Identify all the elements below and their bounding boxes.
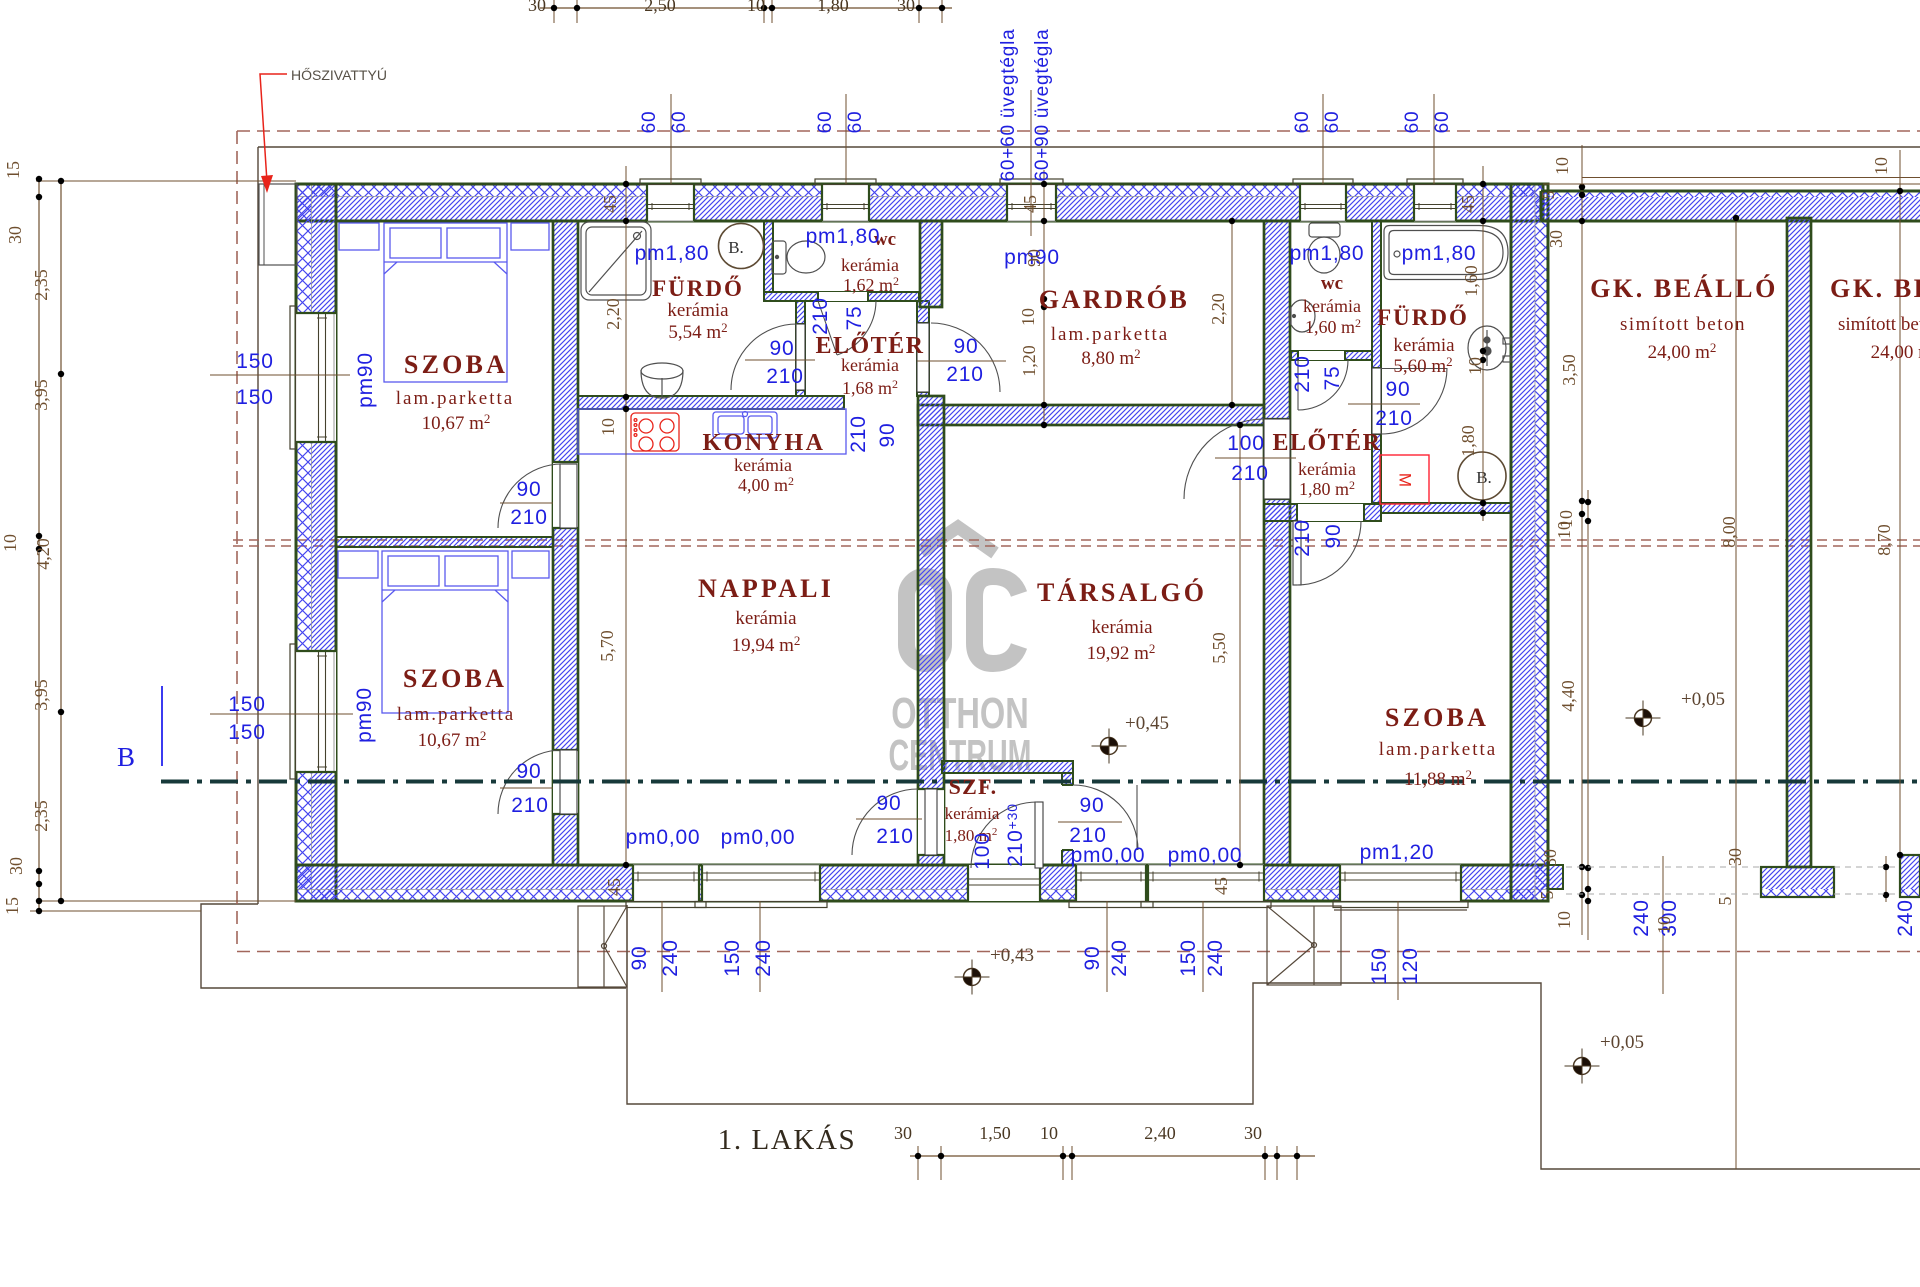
svg-text:1,60 m2: 1,60 m2	[1305, 316, 1361, 337]
svg-text:2,35: 2,35	[31, 800, 51, 832]
svg-text:wc: wc	[1321, 273, 1343, 294]
svg-text:10: 10	[598, 418, 618, 436]
svg-text:5,60 m2: 5,60 m2	[1393, 354, 1452, 377]
svg-text:150: 150	[228, 693, 265, 716]
svg-text:150: 150	[1368, 947, 1391, 984]
svg-text:210: 210	[809, 297, 832, 334]
svg-text:210: 210	[1069, 824, 1106, 847]
svg-text:pm1,80: pm1,80	[1290, 242, 1365, 265]
svg-text:kerámia: kerámia	[841, 355, 899, 375]
svg-text:19,92 m2: 19,92 m2	[1087, 641, 1156, 664]
svg-text:1,68 m2: 1,68 m2	[842, 377, 898, 398]
svg-text:kerámia: kerámia	[945, 804, 1000, 823]
svg-text:SZF.: SZF.	[949, 774, 998, 799]
svg-text:pm90: pm90	[354, 352, 377, 408]
svg-text:90: 90	[1024, 249, 1044, 267]
svg-text:90: 90	[1081, 946, 1104, 971]
svg-text:2,20: 2,20	[1208, 293, 1228, 325]
svg-text:10: 10	[1871, 157, 1891, 175]
svg-text:M: M	[1396, 473, 1415, 487]
svg-text:+0,05: +0,05	[1600, 1032, 1644, 1053]
svg-text:3,95: 3,95	[31, 679, 51, 711]
svg-text:90: 90	[770, 337, 795, 360]
svg-text:30: 30	[5, 226, 25, 244]
svg-text:60: 60	[845, 111, 866, 134]
svg-text:3,95: 3,95	[31, 379, 51, 411]
svg-text:B.: B.	[728, 238, 744, 257]
svg-text:B: B	[117, 742, 135, 772]
svg-text:60: 60	[1432, 111, 1453, 134]
svg-text:150: 150	[1177, 939, 1200, 976]
svg-text:150: 150	[236, 386, 273, 409]
svg-text:60: 60	[639, 111, 660, 134]
svg-text:ELŐTÉR: ELŐTÉR	[1272, 429, 1381, 456]
svg-text:10: 10	[1554, 911, 1574, 929]
svg-text:60: 60	[669, 111, 690, 134]
svg-text:FÜRDŐ: FÜRDŐ	[652, 275, 744, 301]
svg-text:30: 30	[6, 857, 26, 875]
svg-text:5: 5	[1715, 897, 1735, 906]
svg-text:GK. BEÁLLÓ: GK. BEÁLLÓ	[1590, 274, 1778, 303]
svg-text:4,20: 4,20	[33, 538, 53, 570]
svg-text:210: 210	[1375, 407, 1412, 430]
svg-text:30: 30	[894, 1123, 912, 1143]
svg-text:60+90 üvegtégla: 60+90 üvegtégla	[1032, 28, 1053, 181]
svg-text:75: 75	[1321, 366, 1344, 391]
svg-text:10: 10	[1554, 521, 1574, 539]
svg-text:240: 240	[752, 939, 775, 976]
svg-text:10: 10	[1040, 1123, 1058, 1143]
svg-text:pm0,00: pm0,00	[721, 826, 796, 849]
svg-text:1,80: 1,80	[1458, 425, 1478, 457]
svg-text:210: 210	[766, 365, 803, 388]
svg-text:90: 90	[628, 946, 651, 971]
svg-text:8,00: 8,00	[1719, 516, 1739, 548]
svg-text:24,00 m2: 24,00 m2	[1871, 340, 1920, 363]
svg-text:B.: B.	[1476, 468, 1492, 487]
svg-text:SZOBA: SZOBA	[1385, 703, 1489, 732]
svg-text:pm1,80: pm1,80	[635, 242, 710, 265]
svg-text:kerámia: kerámia	[841, 255, 899, 275]
svg-text:30: 30	[528, 0, 546, 15]
svg-text:kerámia: kerámia	[1393, 335, 1455, 356]
svg-text:kerámia: kerámia	[1303, 296, 1361, 316]
svg-text:90: 90	[517, 478, 542, 501]
svg-text:90: 90	[1322, 524, 1345, 549]
svg-text:60: 60	[1292, 111, 1313, 134]
svg-text:45: 45	[1211, 877, 1231, 895]
svg-text:pm0,00: pm0,00	[1168, 844, 1243, 867]
svg-text:1,62 m2: 1,62 m2	[843, 274, 899, 295]
svg-text:60: 60	[815, 111, 836, 134]
svg-text:TÁRSALGÓ: TÁRSALGÓ	[1037, 578, 1207, 607]
svg-text:10,67 m2: 10,67 m2	[418, 728, 487, 751]
svg-text:60: 60	[1322, 111, 1343, 134]
svg-text:15: 15	[2, 897, 22, 915]
svg-text:30: 30	[1546, 230, 1566, 248]
svg-text:75: 75	[843, 306, 866, 331]
svg-text:210: 210	[510, 506, 547, 529]
svg-text:90: 90	[1386, 378, 1411, 401]
svg-text:210: 210	[1231, 462, 1268, 485]
svg-text:2,50: 2,50	[644, 0, 676, 15]
svg-text:1,80: 1,80	[817, 0, 849, 15]
svg-text:100: 100	[1227, 432, 1264, 455]
svg-text:120: 120	[1399, 947, 1422, 984]
svg-text:pm1,80: pm1,80	[806, 225, 881, 248]
svg-text:1. LAKÁS: 1. LAKÁS	[718, 1123, 856, 1156]
svg-text:19,94 m2: 19,94 m2	[732, 633, 801, 656]
svg-text:simított beton: simított beton	[1620, 314, 1746, 335]
svg-text:11,88 m2: 11,88 m2	[1404, 767, 1472, 790]
svg-text:pm0,00: pm0,00	[1071, 844, 1146, 867]
svg-text:150: 150	[721, 939, 744, 976]
svg-text:24,00 m2: 24,00 m2	[1648, 340, 1717, 363]
svg-text:210: 210	[1291, 355, 1314, 392]
svg-text:5,70: 5,70	[597, 630, 617, 662]
svg-text:4,00 m2: 4,00 m2	[738, 474, 794, 495]
svg-text:150: 150	[236, 350, 273, 373]
svg-text:30: 30	[897, 0, 915, 15]
svg-text:10: 10	[1465, 357, 1485, 375]
svg-text:kerámia: kerámia	[1298, 459, 1356, 479]
svg-text:10: 10	[1552, 157, 1572, 175]
svg-text:4,40: 4,40	[1558, 680, 1578, 712]
svg-text:45: 45	[1020, 195, 1040, 213]
svg-text:10,67 m2: 10,67 m2	[422, 411, 491, 434]
svg-text:30: 30	[1725, 848, 1745, 866]
svg-text:kerámia: kerámia	[734, 455, 792, 475]
svg-text:10: 10	[0, 534, 20, 552]
svg-text:1,50: 1,50	[979, 1123, 1011, 1143]
svg-text:150: 150	[228, 721, 265, 744]
svg-text:10: 10	[747, 0, 765, 15]
svg-text:8,70: 8,70	[1874, 524, 1894, 556]
svg-text:+0,45: +0,45	[1125, 713, 1169, 734]
svg-text:SZOBA: SZOBA	[404, 350, 508, 379]
svg-text:90: 90	[877, 792, 902, 815]
svg-text:+0,05: +0,05	[1681, 689, 1725, 710]
svg-text:5,54 m2: 5,54 m2	[668, 320, 727, 343]
svg-text:240: 240	[1108, 939, 1131, 976]
svg-text:10: 10	[1654, 916, 1674, 934]
svg-text:240: 240	[1630, 899, 1653, 936]
svg-text:45: 45	[604, 878, 624, 896]
svg-text:1,60: 1,60	[1461, 265, 1481, 297]
svg-text:pm1,80: pm1,80	[1402, 242, 1477, 265]
svg-text:210: 210	[876, 825, 913, 848]
svg-text:90: 90	[954, 335, 979, 358]
svg-text:45: 45	[1458, 195, 1478, 213]
svg-text:kerámia: kerámia	[667, 300, 729, 321]
svg-text:SZOBA: SZOBA	[403, 664, 507, 693]
svg-text:NAPPALI: NAPPALI	[698, 574, 834, 603]
svg-text:simított beton: simított beton	[1838, 314, 1920, 335]
svg-text:5: 5	[1538, 191, 1558, 200]
svg-text:1,80 m2: 1,80 m2	[1299, 478, 1355, 499]
svg-text:240: 240	[1204, 939, 1227, 976]
svg-text:210: 210	[511, 794, 548, 817]
svg-text:90: 90	[1080, 794, 1105, 817]
svg-text:GK. BEÁLLÓ: GK. BEÁLLÓ	[1830, 274, 1920, 303]
svg-text:210: 210	[847, 415, 870, 452]
svg-text:90: 90	[517, 760, 542, 783]
svg-text:5,50: 5,50	[1209, 632, 1229, 664]
svg-text:pm0,00: pm0,00	[626, 826, 701, 849]
svg-text:90: 90	[876, 423, 899, 448]
svg-text:3,50: 3,50	[1559, 354, 1579, 386]
svg-text:240: 240	[659, 939, 682, 976]
svg-text:FÜRDŐ: FÜRDŐ	[1377, 304, 1469, 330]
svg-text:15: 15	[3, 161, 23, 179]
svg-text:pm90: pm90	[353, 687, 376, 743]
svg-text:240: 240	[1894, 899, 1917, 936]
svg-text:60+60 üvegtégla: 60+60 üvegtégla	[998, 28, 1019, 181]
svg-text:210: 210	[1291, 519, 1314, 556]
svg-text:2,35: 2,35	[31, 269, 51, 301]
svg-text:5: 5	[1537, 891, 1557, 900]
svg-text:100: 100	[971, 832, 994, 869]
svg-text:pm1,20: pm1,20	[1360, 841, 1435, 864]
svg-text:lam.parketta: lam.parketta	[1051, 324, 1169, 345]
svg-text:8,80 m2: 8,80 m2	[1081, 346, 1140, 369]
svg-text:lam.parketta: lam.parketta	[396, 388, 514, 409]
svg-text:45: 45	[600, 195, 620, 213]
svg-text:lam.parketta: lam.parketta	[1379, 739, 1497, 760]
svg-text:60: 60	[1402, 111, 1423, 134]
svg-text:30: 30	[1244, 1123, 1262, 1143]
svg-text:30: 30	[1540, 849, 1560, 867]
svg-text:2,20: 2,20	[603, 298, 623, 330]
svg-text:2,40: 2,40	[1144, 1123, 1176, 1143]
svg-text:KONYHA: KONYHA	[703, 430, 826, 456]
svg-text:lam.parketta: lam.parketta	[397, 704, 515, 725]
svg-text:1,20: 1,20	[1019, 345, 1039, 377]
svg-text:HŐSZIVATTYÚ: HŐSZIVATTYÚ	[291, 67, 387, 83]
svg-text:kerámia: kerámia	[1091, 617, 1153, 638]
svg-text:GARDRÓB: GARDRÓB	[1039, 285, 1189, 314]
svg-text:210: 210	[946, 363, 983, 386]
svg-text:+0,43: +0,43	[990, 945, 1034, 966]
svg-text:10: 10	[1018, 308, 1038, 326]
svg-text:kerámia: kerámia	[735, 608, 797, 629]
